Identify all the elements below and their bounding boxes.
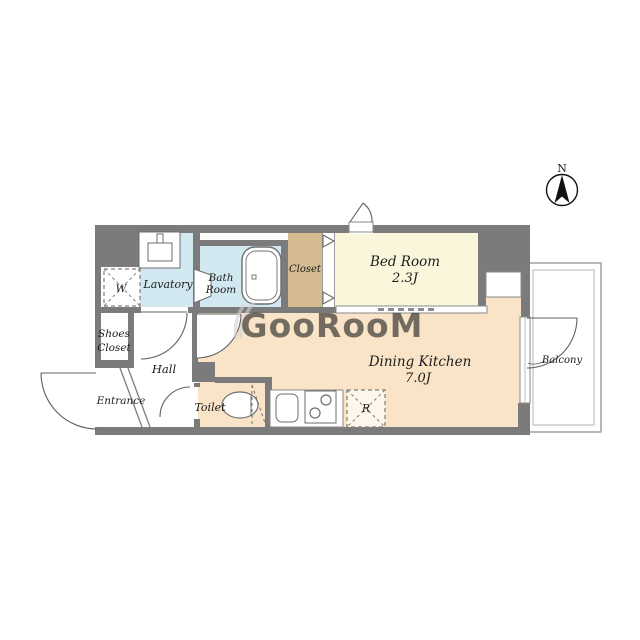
bathroom-label-line1: Bath [208,272,234,284]
bedroom-label: Bed Room [369,254,440,270]
toilet-icon [222,392,258,418]
sink-icon [139,232,180,268]
shoes-closet-label-line2: Closet [97,342,131,354]
toilet-label: Toilet [194,401,226,414]
kitchen-sink-icon [276,394,298,422]
closet-label: Closet [289,264,322,275]
bedroom-swing-window [349,203,373,232]
floorplan-page: GooRooM Lavatory Bath Room Closet Bed Ro… [0,0,640,640]
dining-kitchen-size: 7.0J [405,371,432,386]
lavatory-label: Lavatory [142,278,193,291]
balcony-label: Balcony [541,355,583,366]
entrance-label: Entrance [96,395,146,407]
compass-north-label: N [557,162,567,175]
hall-label: Hall [151,362,177,376]
front-door [41,373,97,429]
lavatory-door [141,312,187,359]
dining-kitchen-label: Dining Kitchen [368,354,472,370]
watermark-text: GooRooM [240,306,423,345]
bathroom-label-line2: Room [205,284,237,296]
kitchen-counter [270,390,343,427]
stove-icon [305,391,336,423]
watermark: GooRooM [235,304,423,345]
bifold-door [322,233,335,307]
toilet-door [160,387,190,417]
shoes-closet-label-line1: Shoes [98,328,130,340]
bedroom-side-window [486,272,521,297]
dining-kitchen-floor-strip [486,297,521,313]
bathtub-icon [242,247,281,304]
washer-mark: W [116,283,128,295]
floorplan-drawing: GooRooM Lavatory Bath Room Closet Bed Ro… [0,0,640,640]
refrigerator-mark: R [361,402,370,415]
compass: N [547,162,578,206]
balcony-outline [527,263,601,432]
bedroom-size: 2.3J [391,271,419,286]
